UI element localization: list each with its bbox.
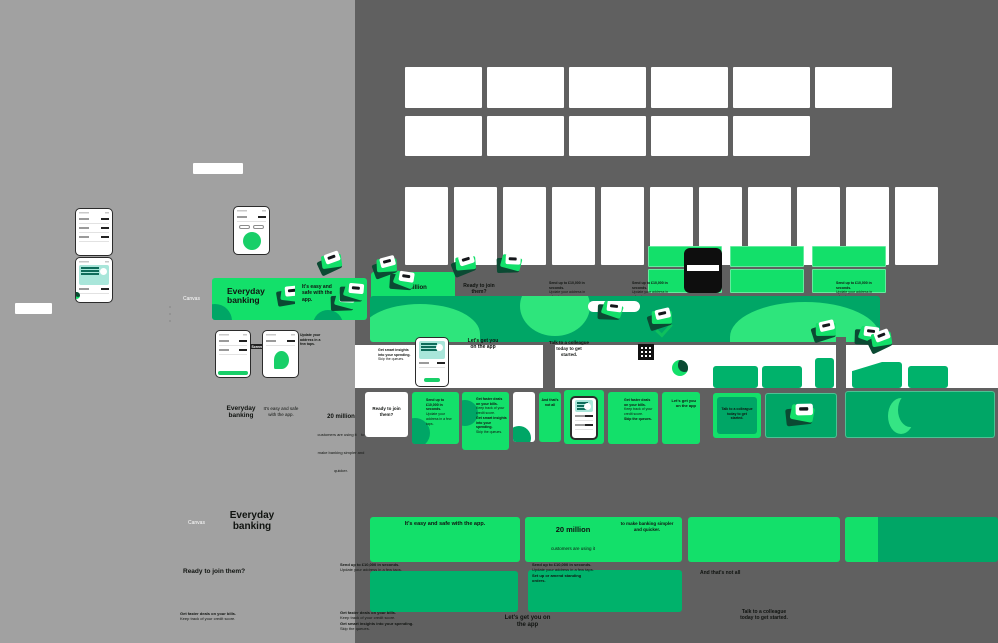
canvas-section-label: Canvas xyxy=(183,296,200,302)
promo-card xyxy=(79,265,109,285)
leaf-logo-icon xyxy=(888,398,914,434)
banner-split-left xyxy=(845,517,878,562)
bullet-queues: Skip the queues. xyxy=(340,626,435,631)
green-tab[interactable] xyxy=(908,366,948,388)
teal-block[interactable]: Send up to £10,000 in seconds. Update yo… xyxy=(528,570,682,612)
lets-get-you-heading: Let's get you on the app xyxy=(500,615,555,629)
app-screen-promo[interactable] xyxy=(75,257,113,303)
canvas-left-page[interactable] xyxy=(0,0,355,643)
bullet-deals: Get faster deals on your bills. xyxy=(476,397,507,406)
thats-heading: And that's not all xyxy=(700,570,740,576)
banner-headline: Everyday banking xyxy=(227,287,283,305)
banner-blob xyxy=(212,304,232,320)
swoosh-shape xyxy=(730,302,880,342)
millions-tail: to make banking simpler and quicker. xyxy=(617,521,677,533)
app-screen-confirm[interactable] xyxy=(233,206,270,255)
empty-frame[interactable] xyxy=(569,116,646,156)
ready-heading: Ready to join them? xyxy=(183,568,253,575)
bullet-column: Send up to £10,000 in seconds. Update yo… xyxy=(532,562,622,584)
bullet-credit: Keep track of your credit score. xyxy=(624,407,654,416)
green-tile[interactable] xyxy=(730,269,804,293)
card-lets[interactable]: Let's get you on the app xyxy=(662,392,700,444)
bullet-queues: Skip the queues. xyxy=(476,430,507,435)
phone-screen-stripe xyxy=(687,265,719,271)
account-row xyxy=(79,216,109,224)
empty-frame[interactable] xyxy=(487,116,564,156)
millions-number: 20 million xyxy=(399,285,427,291)
teal-banner-strip[interactable] xyxy=(370,296,880,342)
card-ready-text: Ready to join them? xyxy=(370,406,403,418)
list-row xyxy=(266,338,295,346)
bullet-send: Send up to £10,000 in seconds. xyxy=(632,281,669,290)
card-blob xyxy=(513,426,531,442)
empty-frame[interactable] xyxy=(405,67,482,108)
empty-frame[interactable] xyxy=(651,67,728,108)
empty-chip-frame[interactable] xyxy=(193,163,243,174)
app-screen-accounts[interactable] xyxy=(75,208,113,256)
bullet-queues: Skip the queues. xyxy=(624,417,654,422)
bullet-column: Get faster deals on your bills. Keep tra… xyxy=(180,611,260,622)
card-text: Get faster deals on your bills. Keep tra… xyxy=(476,397,507,435)
list-row xyxy=(219,338,247,346)
bullet-queues: Skip the queues. xyxy=(378,357,416,362)
millions-sub: customers are using it xyxy=(318,432,357,437)
banner-headline: 20 million customers are using it xyxy=(535,519,611,555)
banner-split[interactable] xyxy=(845,517,998,562)
pill-button xyxy=(239,225,250,229)
insights-bullets: Get smart insights into your spending. S… xyxy=(378,348,416,362)
flow-screen-b[interactable] xyxy=(262,330,299,378)
card-text: And that's not all xyxy=(541,398,559,407)
bullet-amend: Set up or amend standing orders. xyxy=(532,573,590,584)
list-row xyxy=(575,422,593,430)
story-frame[interactable] xyxy=(552,187,595,265)
green-tab[interactable] xyxy=(762,366,802,388)
talk-colleague-heading: Talk to a colleague today to get started… xyxy=(548,340,590,358)
empty-frame[interactable] xyxy=(569,67,646,108)
card-text: Get faster deals on your bills. Keep tra… xyxy=(624,398,654,422)
green-tab[interactable] xyxy=(713,366,758,388)
millions-heading: 20 million customers are using it to mak… xyxy=(316,405,366,477)
everyday-heading-large: Everyday banking xyxy=(222,510,282,532)
list-row xyxy=(419,360,445,368)
everyday-heading: Everyday banking xyxy=(218,405,264,420)
layer-dot xyxy=(169,313,171,315)
story-frame[interactable] xyxy=(895,187,938,265)
story-frame[interactable] xyxy=(454,187,497,265)
card-phone[interactable] xyxy=(564,390,604,444)
teal-block[interactable] xyxy=(370,571,518,612)
account-row xyxy=(79,225,109,233)
bullet-deals: Get faster deals on your bills. xyxy=(624,398,654,407)
story-frame[interactable] xyxy=(601,187,644,265)
empty-frame[interactable] xyxy=(651,116,728,156)
phone-header xyxy=(237,209,266,213)
black-phone-mockup[interactable] xyxy=(684,248,722,293)
promo-card xyxy=(419,341,445,359)
flow-note: Update your address in a few taps. xyxy=(300,333,326,347)
card-illustration-tile[interactable] xyxy=(765,393,837,438)
design-canvas: Canvas Everyday banking It's easy and sa… xyxy=(0,0,998,643)
phone-header xyxy=(79,260,109,264)
brand-roundel-icon xyxy=(75,292,80,299)
card-inner: Talk to a colleague today to get started… xyxy=(717,397,757,434)
pill-button xyxy=(253,225,264,229)
canvas-section-label: Canvas xyxy=(188,520,205,526)
card-send-update[interactable]: Send up to £10,000 in seconds. Update yo… xyxy=(412,392,459,444)
list-row xyxy=(79,286,109,294)
success-blob xyxy=(243,232,261,250)
banner-headline: It's easy and safe with the app. xyxy=(302,284,336,303)
card-text: Talk to a colleague today to get started… xyxy=(721,407,753,421)
card-illustration xyxy=(785,401,817,428)
empty-chip-frame[interactable] xyxy=(15,303,52,314)
green-tile[interactable] xyxy=(730,246,804,267)
millions-sub: customers are using it xyxy=(551,546,595,551)
app-screen-help[interactable] xyxy=(415,337,449,387)
flow-screen-a[interactable] xyxy=(215,330,251,378)
bullet-insights: Get smart insights into your spending. xyxy=(476,416,507,430)
story-frame[interactable] xyxy=(405,187,448,265)
green-tab[interactable] xyxy=(815,358,834,388)
banner-millions-large[interactable]: 20 million customers are using it to mak… xyxy=(525,517,682,562)
leaf-blob xyxy=(274,351,289,369)
green-button xyxy=(424,378,440,382)
millions-number: 20 million xyxy=(327,414,355,420)
card-bullets-2[interactable]: Get faster deals on your bills. Keep tra… xyxy=(608,392,658,444)
millions-number: 20 million xyxy=(556,525,591,534)
bullet-credit: Keep track of your credit score. xyxy=(476,406,507,415)
bullet-send: Send up to £10,000 in seconds. xyxy=(836,281,873,290)
promo-card xyxy=(575,400,593,412)
input-pill xyxy=(588,301,640,312)
bullet-send: Send up to £10,000 in seconds. xyxy=(426,398,456,412)
empty-frame[interactable] xyxy=(487,67,564,108)
card-more-bullets[interactable]: Get faster deals on your bills. Keep tra… xyxy=(462,392,509,450)
brand-roundel-icon xyxy=(672,360,688,376)
empty-frame[interactable] xyxy=(733,67,810,108)
layer-dot xyxy=(169,320,171,322)
list-row xyxy=(237,214,266,222)
phone-header xyxy=(79,211,109,215)
millions-tail: to make banking simpler and quicker. xyxy=(318,432,365,473)
green-tile[interactable] xyxy=(812,246,886,267)
green-button xyxy=(218,371,248,375)
layer-dot xyxy=(169,306,171,308)
card-text: Send up to £10,000 in seconds. Update yo… xyxy=(426,398,456,426)
empty-frame[interactable] xyxy=(405,116,482,156)
banner-easy-safe[interactable]: It's easy and safe with the app. xyxy=(295,278,367,320)
bullet-send: Send up to £10,000 in seconds. xyxy=(549,281,586,290)
card-swoosh[interactable] xyxy=(513,392,535,442)
empty-frame[interactable] xyxy=(815,67,892,108)
bullet-insights: Get smart insights into your spending. xyxy=(378,348,416,357)
ready-heading: Ready to join them? xyxy=(462,283,496,296)
story-frame[interactable] xyxy=(503,187,546,265)
banner-blob xyxy=(313,310,343,320)
list-row xyxy=(575,413,593,421)
lets-get-you-heading: Let's get you on the app xyxy=(464,338,502,351)
qr-code xyxy=(638,344,654,360)
list-row xyxy=(219,347,247,355)
banner-plain-green[interactable] xyxy=(688,517,840,562)
talk-colleague-heading: Talk to a colleague today to get started… xyxy=(738,609,790,622)
bullet-update: Update your address in a few taps. xyxy=(532,567,622,572)
bullet-credit: Keep track of your credit score. xyxy=(180,616,260,621)
card-talk[interactable]: Talk to a colleague today to get started… xyxy=(713,393,761,438)
bullet-update: Update your address in a few taps. xyxy=(426,412,456,426)
phone-header xyxy=(266,333,295,337)
account-row xyxy=(79,234,109,242)
swoosh-shape xyxy=(520,296,590,336)
card-logo-wide[interactable] xyxy=(845,391,995,438)
card-thats[interactable]: And that's not all xyxy=(539,392,561,442)
card-text: Let's get you on the app xyxy=(668,398,696,409)
card-ready[interactable]: Ready to join them? xyxy=(365,392,408,437)
banner-headline: It's easy and safe with the app. xyxy=(395,521,495,528)
banner-easy-large[interactable]: It's easy and safe with the app. xyxy=(370,517,520,562)
phone-header xyxy=(219,333,247,337)
easy-heading: It's easy and safe with the app. xyxy=(260,406,302,418)
empty-frame[interactable] xyxy=(733,116,810,156)
bullet-column: Get faster deals on your bills. Keep tra… xyxy=(340,610,435,632)
band-gap xyxy=(836,337,846,388)
mini-phone-mockup xyxy=(570,396,598,440)
